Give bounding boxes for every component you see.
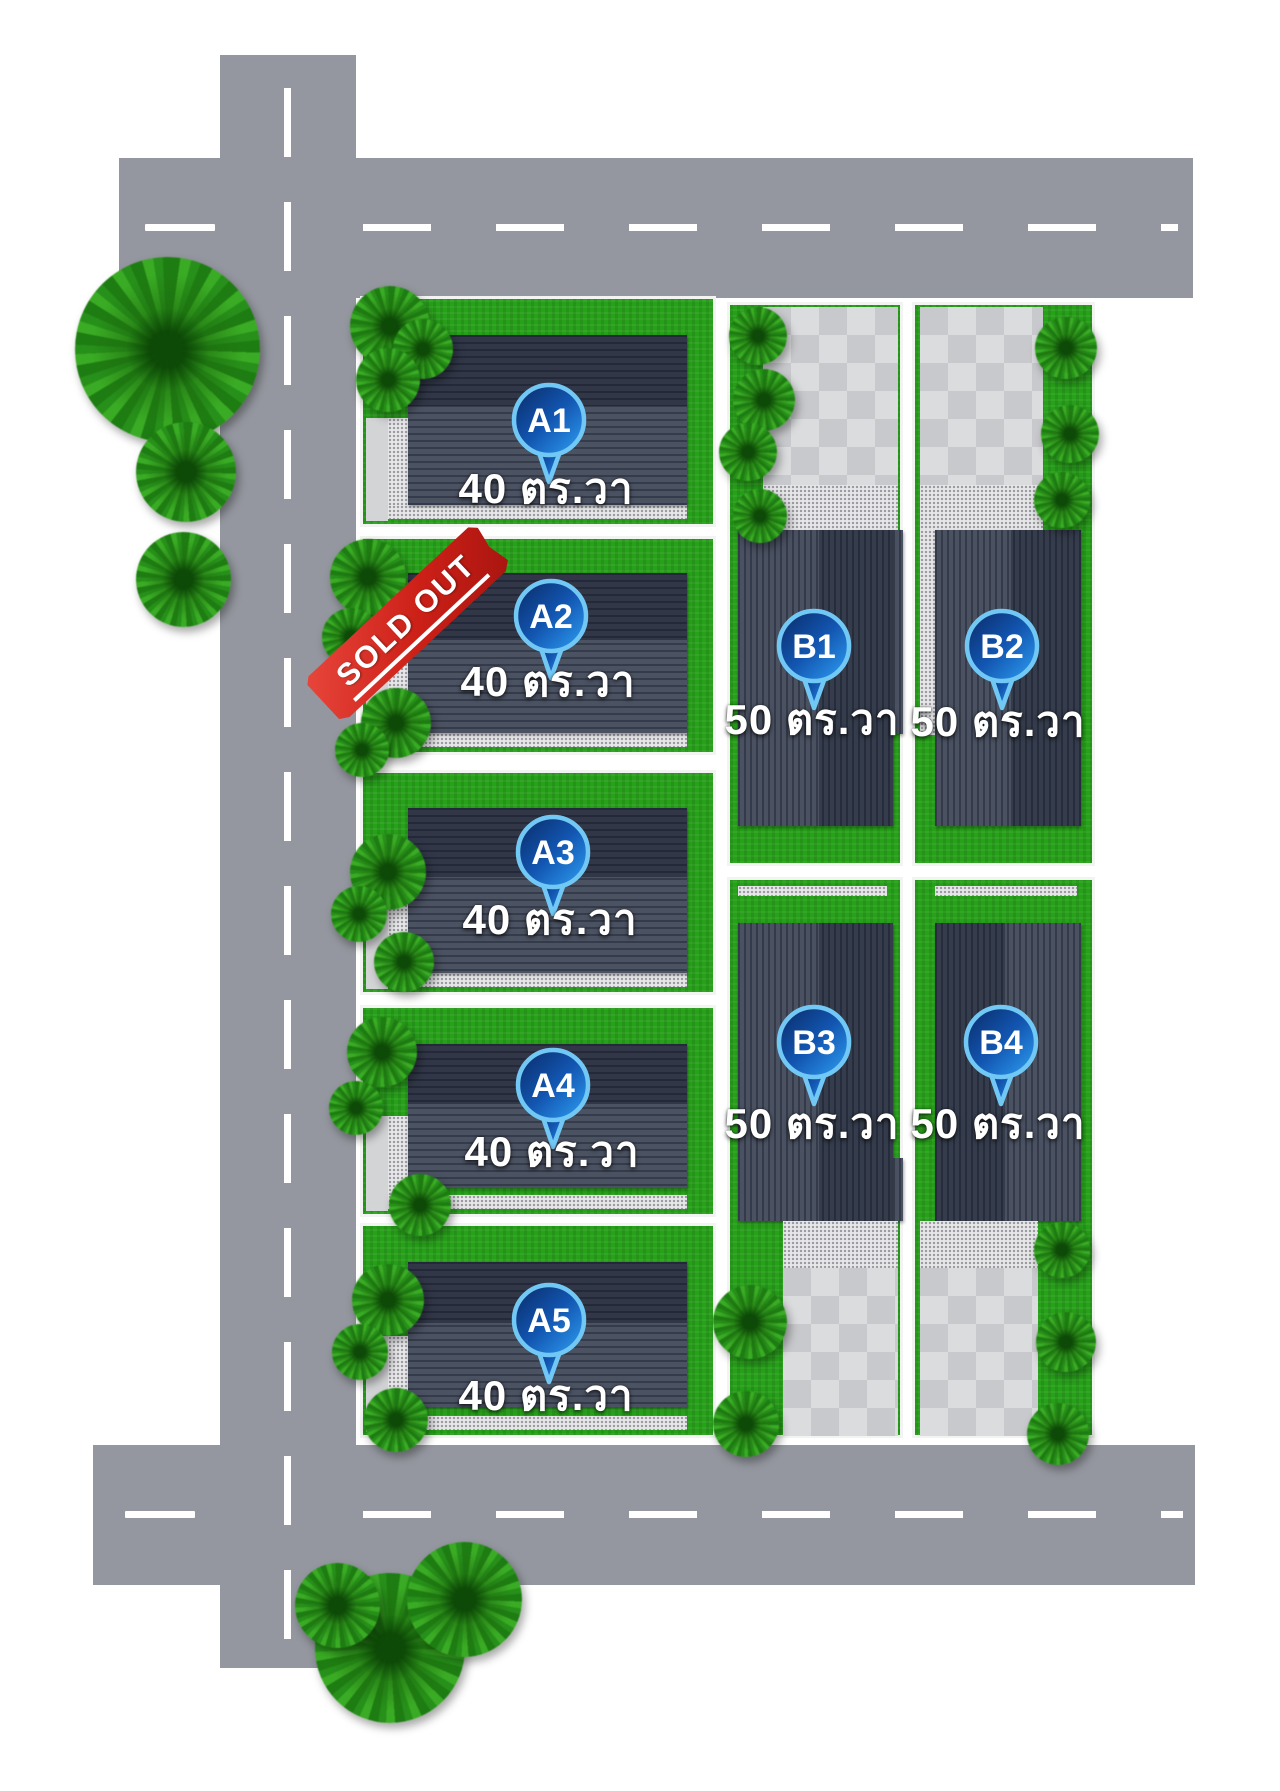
palm-tree — [335, 723, 389, 777]
palm-tree — [136, 532, 231, 627]
area-label: 40 ตร.วา — [458, 1363, 633, 1429]
pin-label: B1 — [792, 628, 835, 666]
walkway — [920, 485, 1043, 530]
area-label: 40 ตร.วา — [458, 456, 633, 522]
driveway-plaza — [920, 307, 1043, 485]
area-label: 50 ตร.วา — [724, 1091, 899, 1157]
palm-tree — [364, 1388, 428, 1452]
palm-tree — [407, 1542, 522, 1657]
road-centerline-top — [363, 224, 1178, 231]
palm-tree — [733, 369, 795, 431]
terrace — [388, 733, 687, 747]
house-roof-wing — [893, 1158, 903, 1221]
road-centerline-dash — [125, 1511, 195, 1518]
driveway-plaza — [783, 1268, 898, 1436]
walkway — [783, 1221, 898, 1268]
pin-label: B2 — [980, 628, 1023, 666]
palm-tree — [729, 307, 787, 365]
back-terrace — [738, 886, 887, 896]
palm-tree — [1034, 1222, 1090, 1278]
lot-B2[interactable] — [912, 302, 1095, 866]
palm-tree — [1036, 1312, 1096, 1372]
terrace — [388, 973, 687, 987]
pin-label: B4 — [979, 1024, 1023, 1062]
area-label: 40 ตร.วา — [464, 1119, 639, 1185]
area-label: 40 ตร.วา — [460, 649, 635, 715]
walkway — [920, 1221, 1038, 1268]
back-terrace — [935, 886, 1077, 896]
palm-tree — [295, 1563, 380, 1648]
palm-tree — [329, 1081, 383, 1135]
pin-label: B3 — [792, 1024, 835, 1062]
area-label: 50 ตร.วา — [910, 1091, 1085, 1157]
palm-tree — [356, 348, 420, 412]
road-centerline-vertical — [284, 88, 291, 1640]
pin-label: A2 — [529, 598, 572, 636]
palm-tree — [389, 1174, 451, 1236]
area-label: 50 ตร.วา — [724, 687, 899, 753]
driveway-plaza — [920, 1268, 1038, 1436]
palm-tree — [719, 423, 777, 481]
site-plan-canvas: SOLD OUT A1 40 ตร.วา A2 40 ตร.วา — [0, 0, 1280, 1791]
palm-tree — [347, 1017, 417, 1087]
driveway — [366, 418, 388, 521]
palm-tree — [713, 1285, 787, 1359]
pin-label: A3 — [531, 834, 574, 872]
palm-tree — [733, 489, 787, 543]
road-centerline-bottom — [363, 1511, 1183, 1518]
pin-label: A4 — [531, 1067, 575, 1105]
palm-tree — [136, 422, 236, 522]
palm-tree — [1034, 472, 1090, 528]
palm-tree — [1027, 1403, 1089, 1465]
pin-label: A5 — [527, 1302, 570, 1340]
palm-tree — [1035, 317, 1097, 379]
palm-tree — [332, 1324, 388, 1380]
palm-tree — [374, 932, 434, 992]
road-centerline-dash — [145, 224, 215, 231]
palm-tree — [75, 257, 260, 442]
palm-tree — [331, 886, 387, 942]
pin-label: A1 — [527, 402, 570, 440]
area-label: 50 ตร.วา — [910, 689, 1085, 755]
area-label: 40 ตร.วา — [462, 887, 637, 953]
palm-tree — [1041, 405, 1099, 463]
palm-tree — [713, 1391, 779, 1457]
walkway — [388, 418, 408, 508]
